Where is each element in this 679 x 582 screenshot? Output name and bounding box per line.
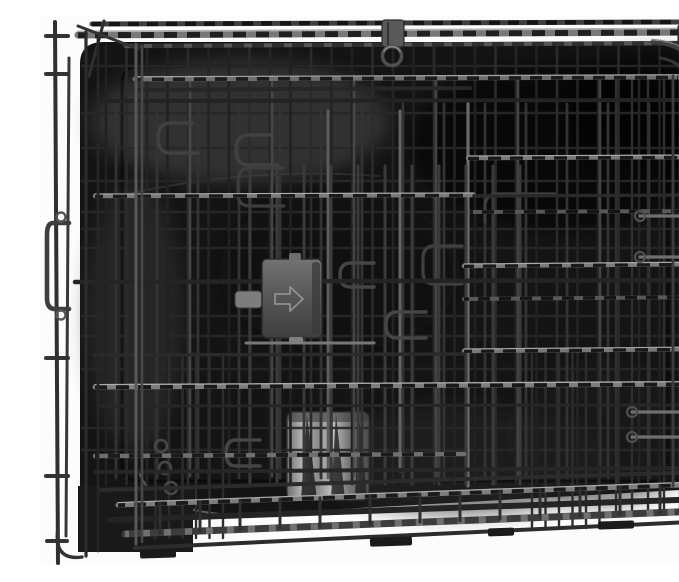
panel-edge — [78, 32, 679, 35]
panel-edge-dark — [100, 100, 679, 101]
crate-foot — [370, 536, 412, 546]
panel-edge — [135, 77, 678, 79]
panel-edge-dark — [95, 354, 464, 355]
dog-crate-image — [40, 16, 679, 566]
crate-foot — [488, 528, 514, 537]
panel-edge-dark — [135, 88, 470, 90]
slide-latch-tab — [235, 291, 262, 308]
panel-edge — [95, 454, 464, 456]
panel-edge-dark — [75, 280, 679, 282]
crate-foot — [598, 520, 634, 529]
panel-edge-dark — [474, 195, 679, 196]
product-photo-dog-crate — [40, 16, 679, 566]
latch-right-shade — [312, 262, 320, 335]
hinge-clamp — [382, 20, 404, 47]
panel-edge-dark — [98, 405, 679, 406]
latch-notch — [289, 253, 301, 260]
latch-notch — [289, 337, 303, 344]
